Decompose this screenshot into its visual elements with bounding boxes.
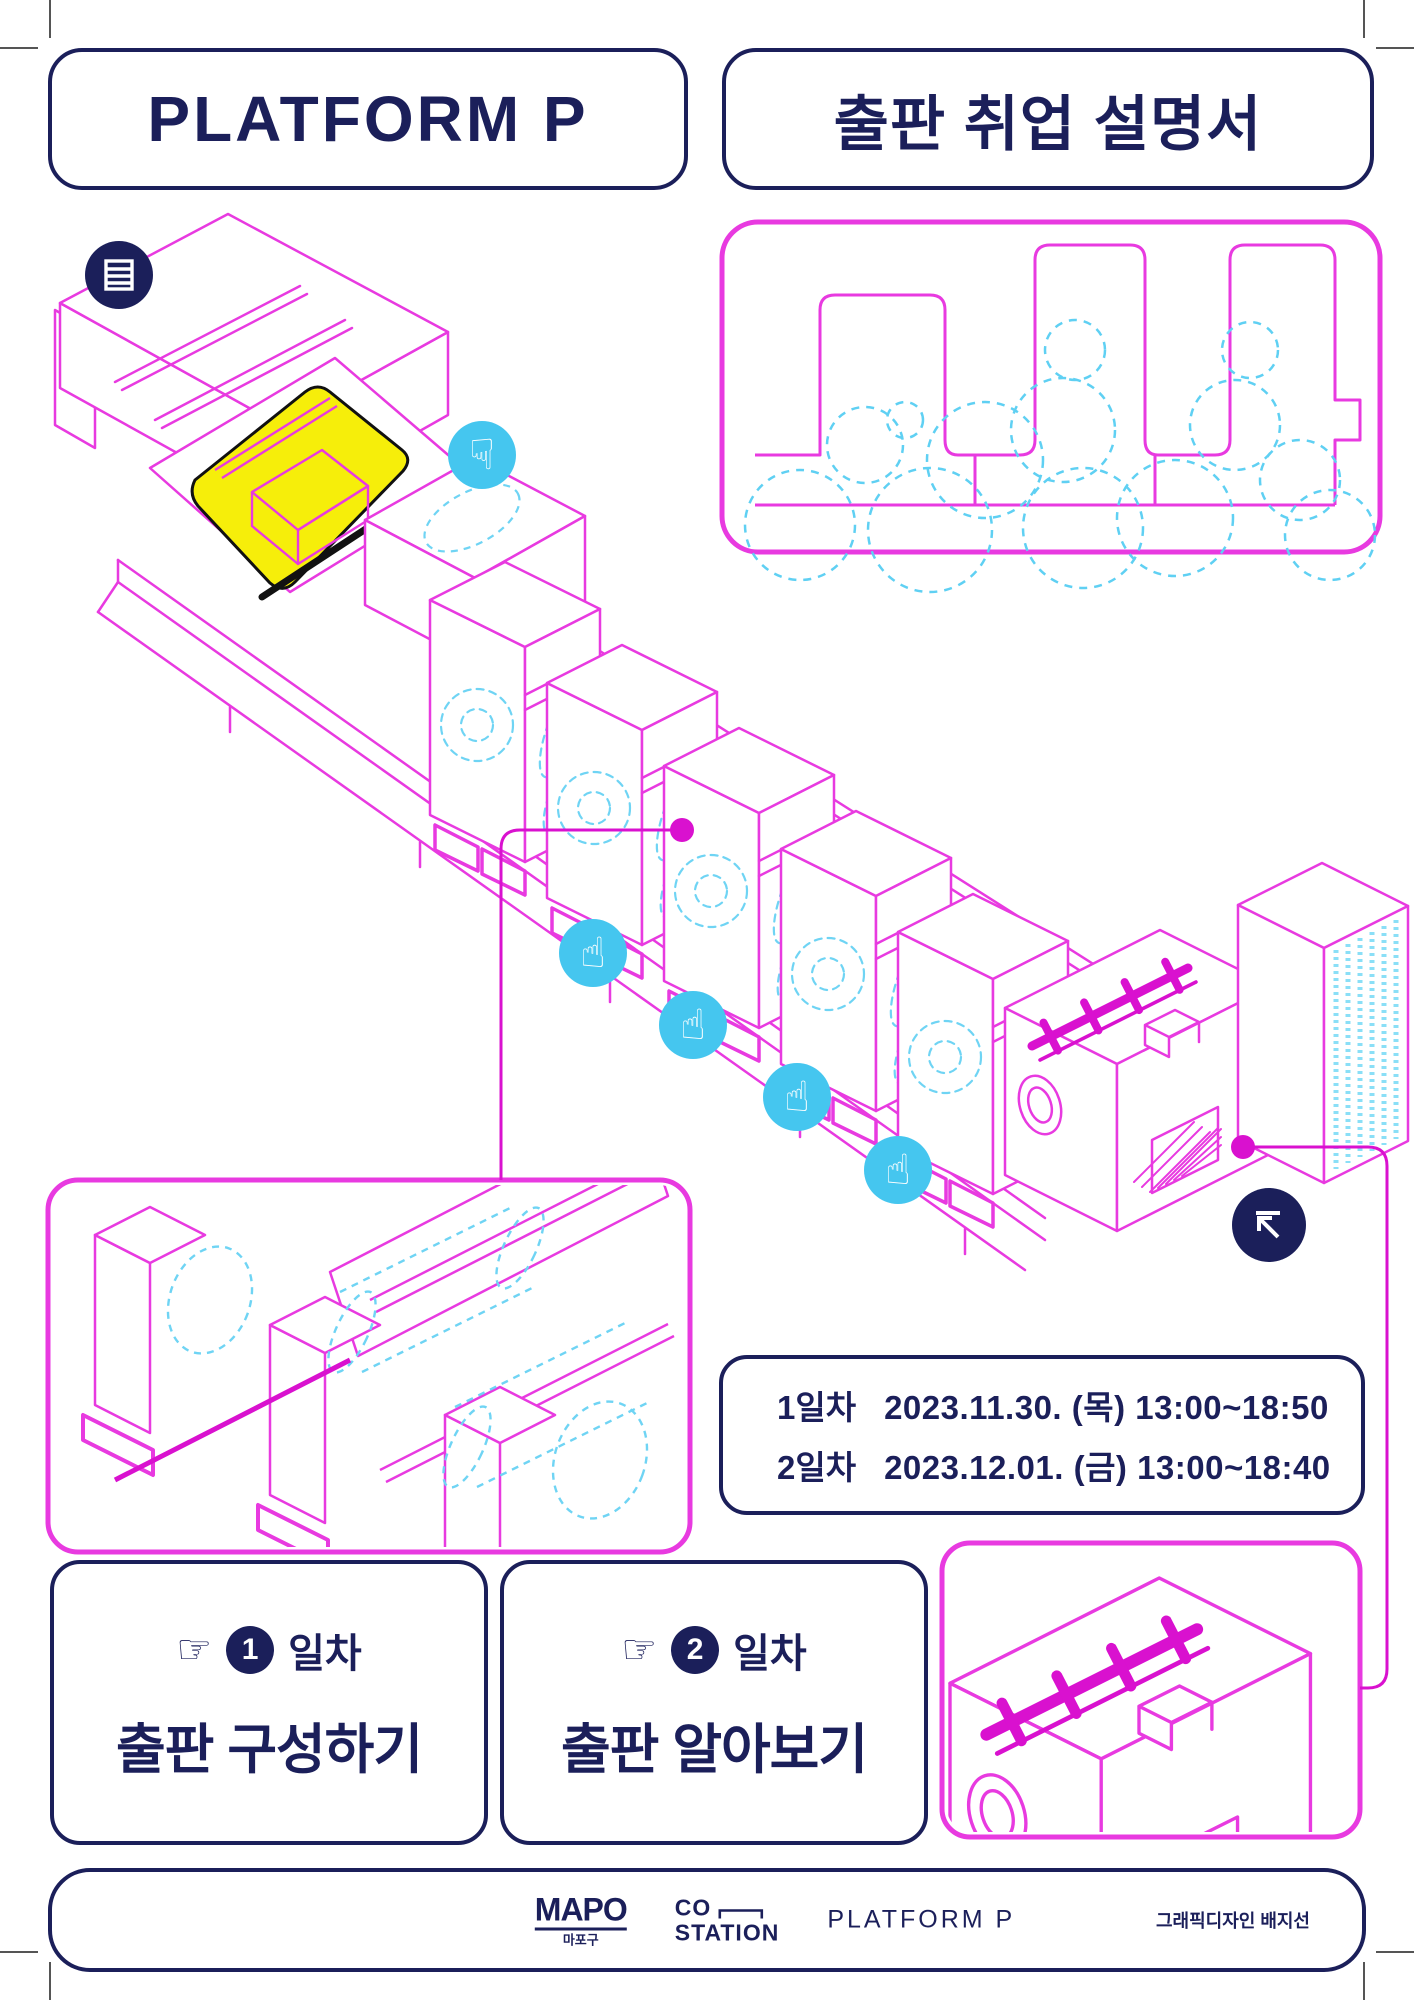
poster-page: PLATFORM P 출판 취업 설명서 ☟ ☝ ☝ ☝ ☝ 1일차 2023. [0,0,1414,2000]
platformp-wordmark: PLATFORM P [827,1906,1015,1935]
costation-bracket-icon [717,1902,763,1920]
day-card-1: ☞ 1 일차 출판 구성하기 [50,1560,488,1845]
right-cabinet [1238,863,1408,1183]
day-label: 2일차 [777,1441,856,1489]
schematic-box [722,222,1380,592]
costation-co: CO [675,1896,712,1920]
day-datetime: 2023.12.01. (금) 13:00~18:40 [884,1441,1331,1489]
crop-mark [1363,0,1365,38]
costation-logo: CO STATION [675,1896,780,1944]
hand-up-glyph: ☝ [784,1076,810,1118]
footer-logos: MAPO 마포구 CO STATION PLATFORM P [535,1894,1015,1947]
title-box-subject: 출판 취업 설명서 [722,48,1374,190]
hand-marker-icon: ☟ [448,421,516,489]
costation-station: STATION [675,1920,780,1944]
title-box-platform-p: PLATFORM P [48,48,688,190]
mapo-caption: 마포구 [563,1934,599,1947]
day-datetime: 2023.11.30. (목) 13:00~18:50 [884,1381,1329,1429]
detail-box-left [48,1112,690,1613]
document-icon [85,241,153,309]
day-card-2-title: 출판 알아보기 [561,1705,867,1784]
hand-marker-icon: ☝ [864,1136,932,1204]
arrow-corner-icon [1232,1188,1306,1262]
mapo-wordmark: MAPO [535,1894,627,1931]
crop-mark [1363,1962,1365,2000]
day-number-badge: 2 [671,1626,719,1674]
crop-mark [0,47,38,49]
crop-mark [0,1951,38,1953]
pointing-hand-icon: ☞ [621,1627,657,1673]
mapo-logo: MAPO 마포구 [535,1894,627,1947]
crop-mark [1376,47,1414,49]
day-card-1-head: ☞ 1 일차 [176,1621,361,1679]
schedule-row-day1: 1일차 2023.11.30. (목) 13:00~18:50 [777,1381,1361,1429]
hand-marker-icon: ☝ [763,1063,831,1131]
footer-bar: MAPO 마포구 CO STATION PLATFORM P 그래픽디자인 배지… [48,1868,1366,1972]
day-suffix: 일차 [733,1621,807,1679]
day-number-badge: 1 [226,1626,274,1674]
crop-mark [49,1962,51,2000]
hand-up-glyph: ☝ [885,1149,911,1191]
page-title: PLATFORM P [147,82,588,156]
crop-mark [49,0,51,38]
day-card-2: ☞ 2 일차 출판 알아보기 [500,1560,928,1845]
day-label: 1일차 [777,1381,856,1429]
hand-up-glyph: ☝ [580,932,606,974]
pointing-hand-icon: ☞ [176,1627,212,1673]
day-card-1-title: 출판 구성하기 [116,1705,422,1784]
design-credit: 그래픽디자인 배지선 [1156,1907,1310,1933]
day-suffix: 일차 [288,1621,362,1679]
crop-mark [1376,1951,1414,1953]
hand-marker-icon: ☝ [659,991,727,1059]
schedule-box: 1일차 2023.11.30. (목) 13:00~18:50 2일차 2023… [719,1355,1365,1515]
subject-title: 출판 취업 설명서 [834,76,1263,163]
hand-marker-icon: ☝ [559,919,627,987]
day-card-2-head: ☞ 2 일차 [621,1621,806,1679]
schedule-row-day2: 2일차 2023.12.01. (금) 13:00~18:40 [777,1441,1361,1489]
hand-up-glyph: ☝ [680,1004,706,1046]
hand-down-glyph: ☟ [469,434,495,476]
